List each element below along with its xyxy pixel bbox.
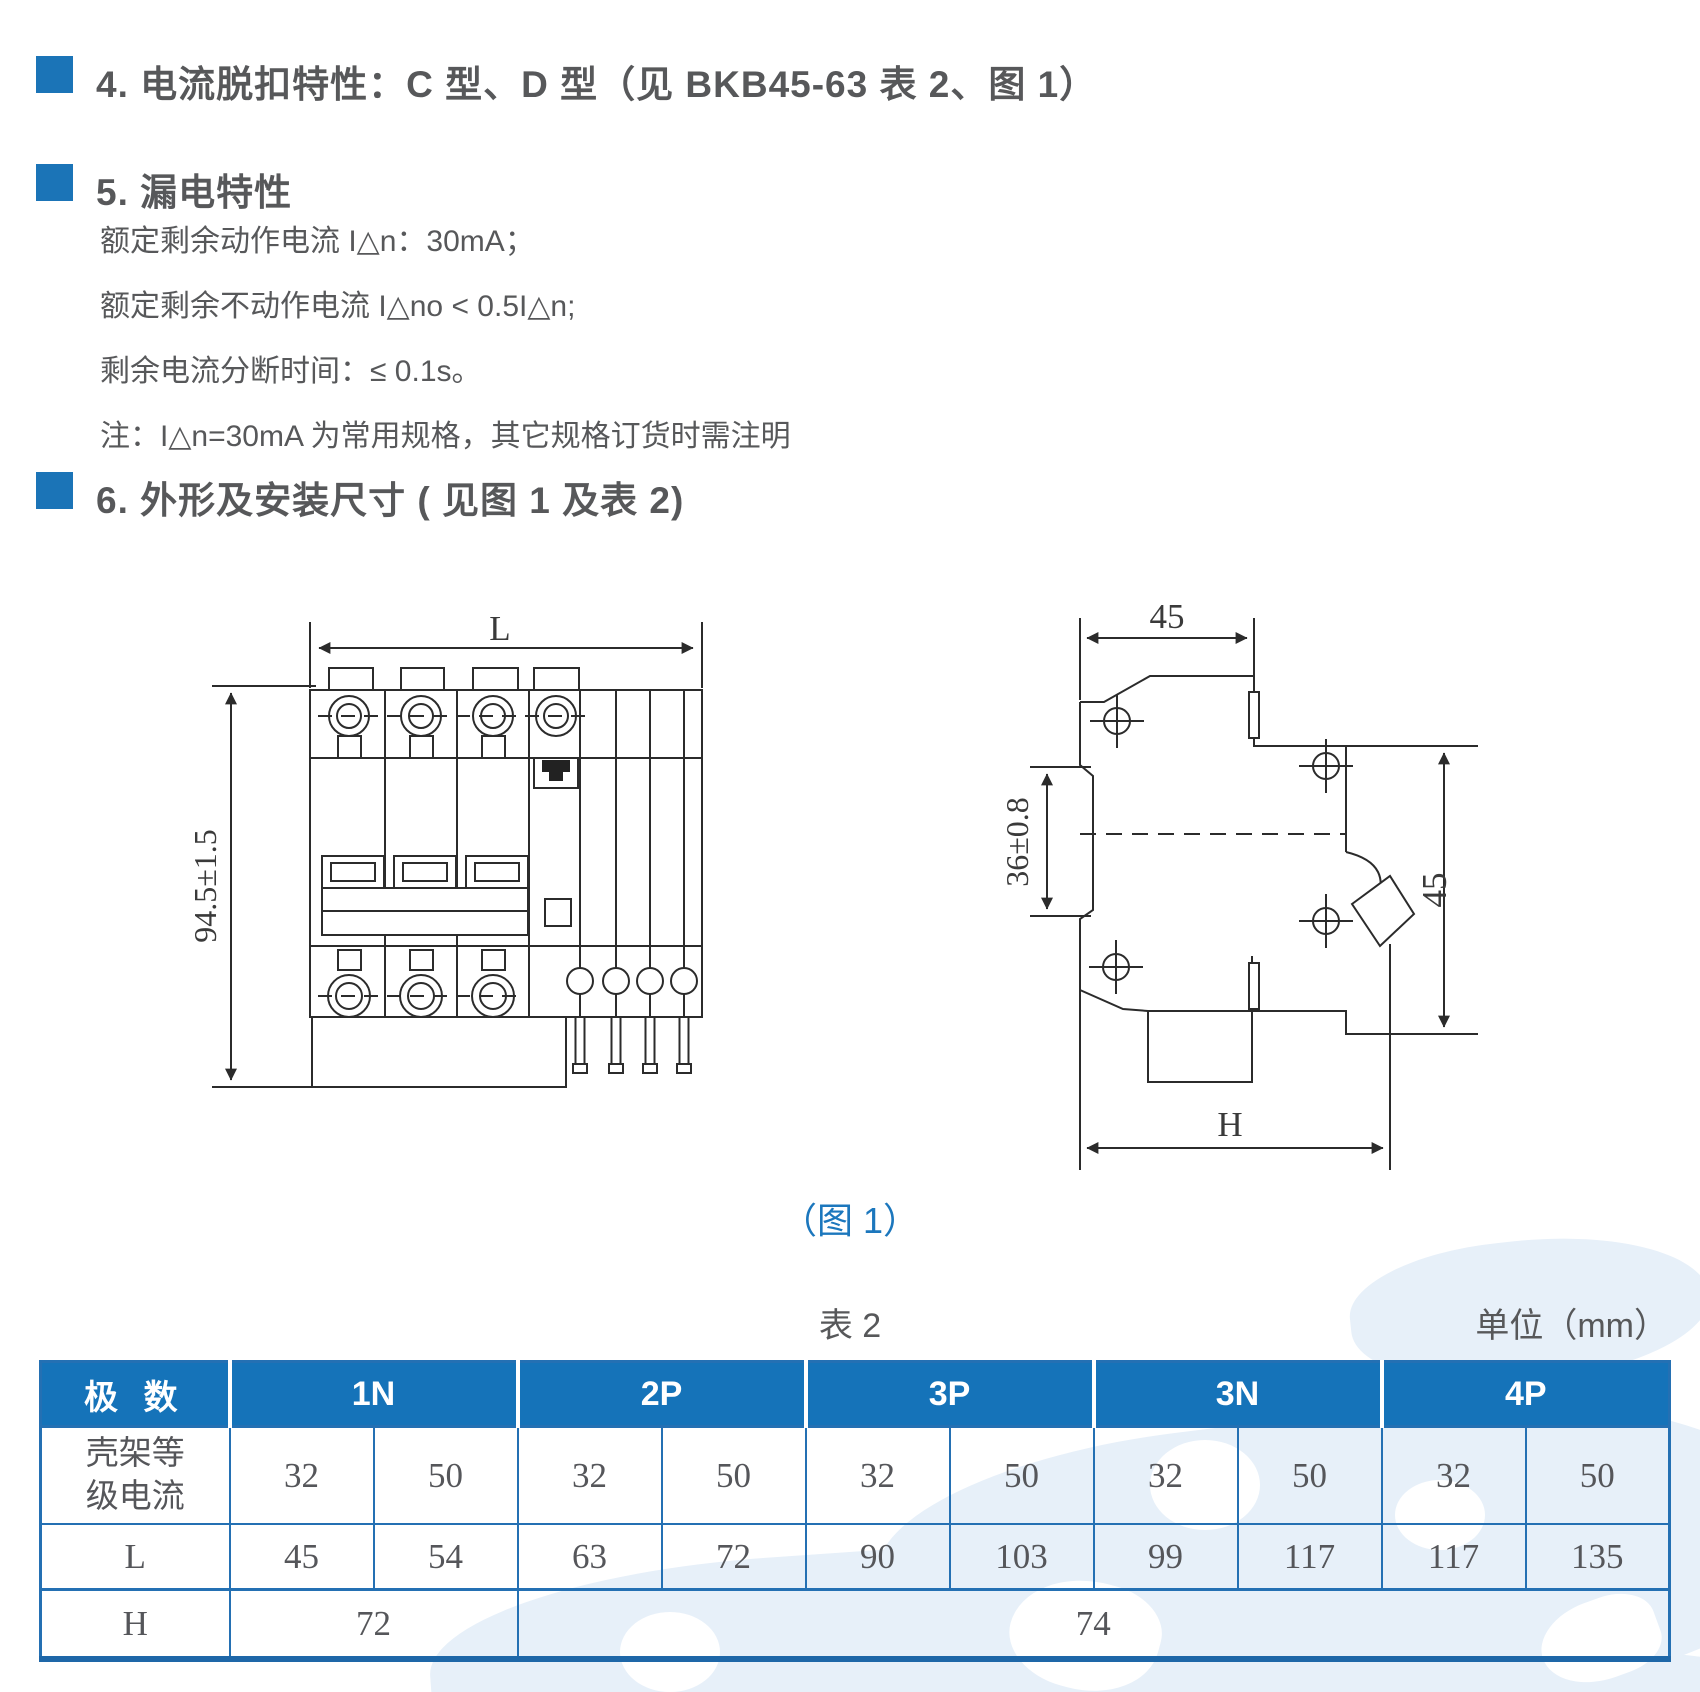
leakage-spec-line: 剩余电流分断时间：≤ 0.1s。 [100,346,482,390]
value-cell: 99 [1094,1524,1238,1590]
value-cell: 32 [230,1427,374,1525]
dim-label-right-45: 45 [1415,873,1454,908]
leakage-spec-line: 额定剩余不动作电流 I△no < 0.5I△n; [100,281,575,325]
dim-label-36: 36±0.8 [999,797,1035,887]
unit-label: 单位（mm） [1380,1298,1668,1347]
value-cell: 117 [1382,1524,1526,1590]
value-cell: 32 [1382,1427,1526,1525]
value-cell: 74 [518,1590,1670,1660]
section-6-heading: 6. 外形及安装尺寸 ( 见图 1 及表 2) [96,470,684,524]
leakage-spec-line: 注：I△n=30mA 为常用规格，其它规格订货时需注明 [100,411,791,455]
length-row: L 45 54 63 72 90 103 99 117 117 135 [41,1524,1670,1590]
row-label-line1: 壳架等 [42,1433,229,1476]
value-cell: 50 [662,1427,806,1525]
header-group-2P: 2P [518,1362,806,1427]
header-group-1N: 1N [230,1362,518,1427]
dim-label-top-45: 45 [1150,597,1185,636]
figure-caption: （图 1） [690,1192,1010,1244]
dim-label-height: 94.5±1.5 [187,829,223,943]
value-cell: 135 [1526,1524,1670,1590]
section-4-heading: 4. 电流脱扣特性：C 型、D 型（见 BKB45-63 表 2、图 1） [96,54,1097,108]
value-cell: 50 [1526,1427,1670,1525]
front-view-drawing [212,622,702,1087]
section-5-heading: 5. 漏电特性 [96,162,292,216]
value-cell: 50 [950,1427,1094,1525]
value-cell: 72 [662,1524,806,1590]
value-cell: 32 [1094,1427,1238,1525]
row-label-frame-current: 壳架等 级电流 [41,1427,230,1525]
frame-current-row: 壳架等 级电流 32 50 32 50 32 50 32 50 32 50 [41,1427,1670,1525]
value-cell: 32 [518,1427,662,1525]
value-cell: 50 [1238,1427,1382,1525]
value-cell: 90 [806,1524,950,1590]
leakage-spec-line: 额定剩余动作电流 I△n：30mA； [100,216,535,260]
bullet-square-icon [36,56,73,93]
table-2-label: 表 2 [700,1298,1000,1347]
value-cell: 32 [806,1427,950,1525]
header-group-3P: 3P [806,1362,1094,1427]
bullet-square-icon [36,472,73,509]
table-header-row: 极 数 1N 2P 3P 3N 4P [41,1362,1670,1427]
header-pole-count: 极 数 [41,1362,230,1427]
value-cell: 54 [374,1524,518,1590]
dim-label-L: L [489,609,510,648]
dimension-table: 极 数 1N 2P 3P 3N 4P 壳架等 级电流 32 50 32 50 3… [39,1360,1671,1662]
value-cell: 72 [230,1590,518,1660]
header-group-4P: 4P [1382,1362,1670,1427]
row-label-H: H [41,1590,230,1660]
bullet-square-icon [36,164,73,201]
dim-label-H: H [1217,1105,1242,1144]
value-cell: 45 [230,1524,374,1590]
header-group-3N: 3N [1094,1362,1382,1427]
datasheet-page: 4. 电流脱扣特性：C 型、D 型（见 BKB45-63 表 2、图 1） 5.… [0,0,1700,1692]
row-label-L: L [41,1524,230,1590]
value-cell: 50 [374,1427,518,1525]
height-row: H 72 74 [41,1590,1670,1660]
row-label-line2: 级电流 [42,1476,229,1519]
side-view-drawing [1030,618,1478,1170]
value-cell: 103 [950,1524,1094,1590]
value-cell: 63 [518,1524,662,1590]
figure-1-drawings: L 94.5±1.5 45 36±0.8 45 H [0,545,1700,1185]
value-cell: 117 [1238,1524,1382,1590]
